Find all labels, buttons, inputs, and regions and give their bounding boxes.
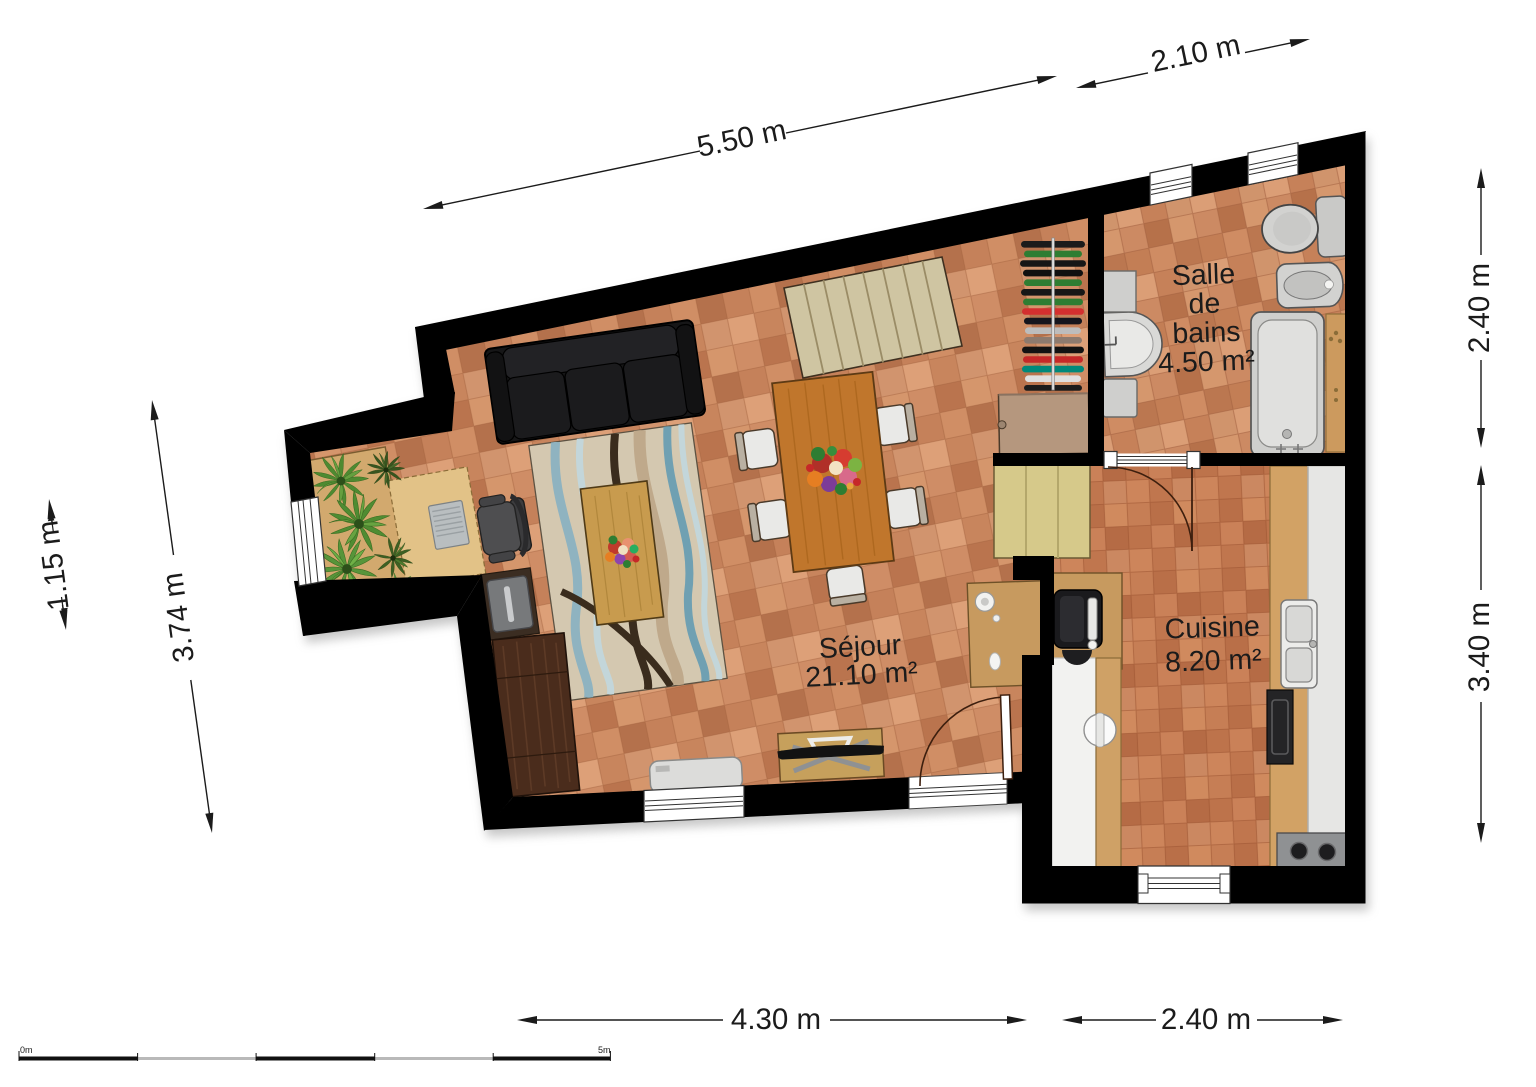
svg-text:21.10 m²: 21.10 m² (805, 656, 919, 694)
svg-text:0m: 0m (20, 1045, 33, 1055)
svg-text:8.20 m²: 8.20 m² (1165, 643, 1263, 678)
svg-text:5m: 5m (598, 1045, 611, 1055)
svg-text:3.74 m: 3.74 m (156, 571, 201, 665)
svg-text:Cuisine: Cuisine (1164, 610, 1260, 645)
svg-text:5.50 m: 5.50 m (694, 113, 789, 164)
svg-text:1.15 m: 1.15 m (31, 519, 75, 613)
svg-text:3.40 m: 3.40 m (1463, 602, 1496, 692)
svg-text:2.10 m: 2.10 m (1148, 28, 1243, 79)
svg-text:2.40 m: 2.40 m (1463, 263, 1496, 353)
svg-text:4.50 m²: 4.50 m² (1158, 344, 1256, 379)
svg-text:de: de (1188, 287, 1221, 320)
svg-text:Salle: Salle (1171, 258, 1235, 292)
svg-text:4.30 m: 4.30 m (731, 1003, 821, 1036)
svg-text:2.40 m: 2.40 m (1161, 1003, 1251, 1036)
